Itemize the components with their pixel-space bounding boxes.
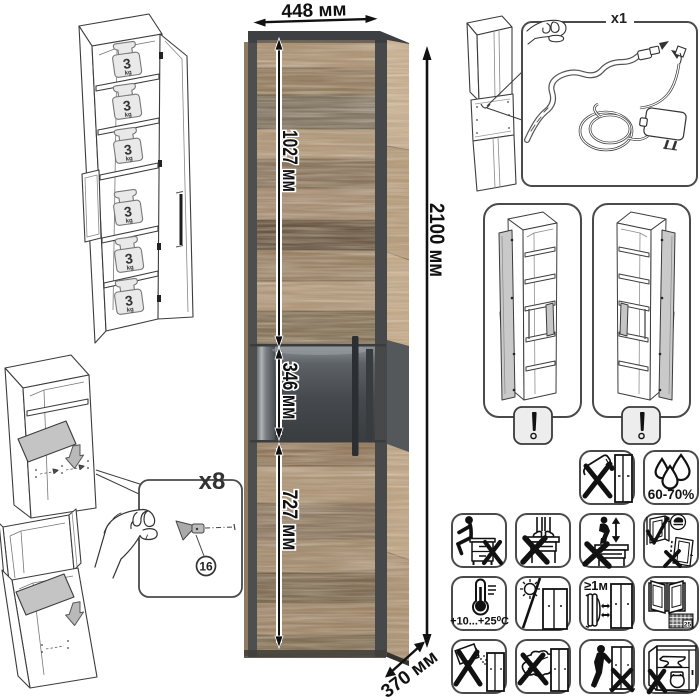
svg-text:x1: x1: [611, 11, 627, 27]
svg-text:x8: x8: [199, 468, 226, 495]
svg-text:346 мм: 346 мм: [278, 363, 301, 420]
svg-text:25: 25: [684, 622, 692, 629]
svg-text:2100 мм: 2100 мм: [425, 203, 448, 277]
svg-text:16: 16: [199, 560, 213, 574]
svg-text:727 мм: 727 мм: [278, 490, 301, 551]
svg-text:60-70%: 60-70%: [648, 487, 695, 502]
svg-text:+10...+25⁰C: +10...+25⁰C: [450, 616, 509, 628]
svg-text:≥1м: ≥1м: [584, 578, 608, 593]
svg-text:1027 мм: 1027 мм: [278, 130, 301, 192]
